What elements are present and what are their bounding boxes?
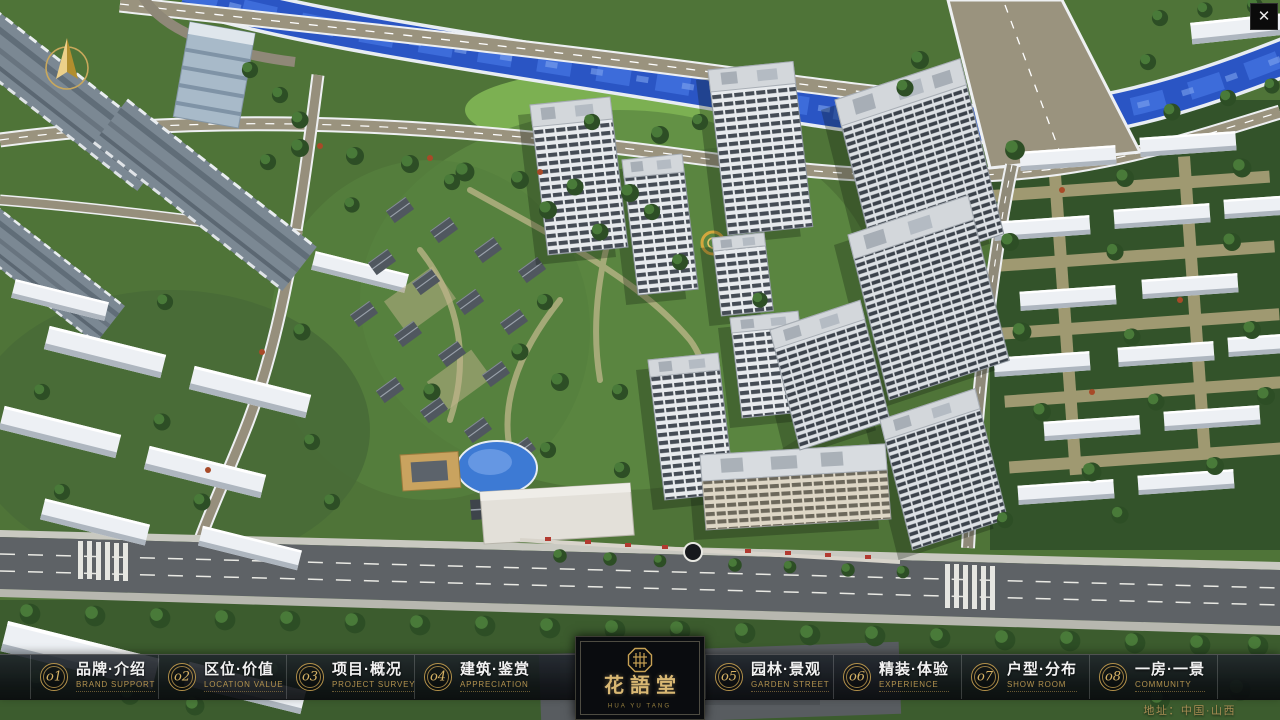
nav-number-badge: o4: [424, 663, 452, 691]
nav-label: 区位·价值: [204, 662, 283, 678]
nav-label: 园林·景观: [751, 662, 829, 678]
nav-caption: COMMUNITY: [1135, 680, 1205, 692]
nav-caption: BRAND SUPPORT: [76, 680, 155, 692]
nav-caption: SHOW ROOM: [1007, 680, 1077, 692]
nav-caption: PROJECT SURVEY: [332, 680, 414, 692]
navbar-left-stub: [0, 655, 30, 699]
address-text: 地址：中国·山西: [1143, 702, 1236, 718]
nav-label: 户型·分布: [1007, 662, 1077, 678]
nav-number-badge: o3: [296, 663, 324, 691]
seal-icon: [627, 647, 653, 673]
nav-item-decoration-experience[interactable]: o6 精装·体验 EXPERIENCE: [833, 655, 961, 699]
nav-item-architecture[interactable]: o4 建筑·鉴赏 APPRECIATION: [414, 655, 542, 699]
navbar-right-stub: [1217, 655, 1280, 699]
nav-label: 项目·概况: [332, 662, 414, 678]
nav-number-badge: o1: [40, 663, 68, 691]
aerial-masterplan-rendering: [0, 0, 1280, 720]
nav-label: 精装·体验: [879, 662, 949, 678]
nav-item-brand-intro[interactable]: o1 品牌·介绍 BRAND SUPPORT: [30, 655, 158, 699]
nav-number-badge: o7: [971, 663, 999, 691]
nav-caption: EXPERIENCE: [879, 680, 949, 692]
nav-item-floorplan-distribution[interactable]: o7 户型·分布 SHOW ROOM: [961, 655, 1089, 699]
nav-number-badge: o8: [1099, 663, 1127, 691]
brand-subtitle: HUA YU TANG: [608, 702, 671, 709]
compass-icon: [38, 30, 96, 96]
nav-caption: LOCATION VALUE: [204, 680, 283, 692]
nav-number-badge: o5: [715, 663, 743, 691]
nav-caption: APPRECIATION: [460, 680, 530, 692]
brand-logo-panel[interactable]: 花語堂 HUA YU TANG: [575, 636, 705, 720]
nav-item-location-value[interactable]: o2 区位·价值 LOCATION VALUE: [158, 655, 286, 699]
presentation-screen: ✕ o1 品牌·介绍 BRAND SUPPORT o2 区位·价值 LOCATI…: [0, 0, 1280, 720]
close-button[interactable]: ✕: [1250, 3, 1278, 30]
nav-number-badge: o6: [843, 663, 871, 691]
nav-item-room-view[interactable]: o8 一房·一景 COMMUNITY: [1089, 655, 1217, 699]
nav-label: 品牌·介绍: [76, 662, 155, 678]
nav-item-project-survey[interactable]: o3 项目·概况 PROJECT SURVEY: [286, 655, 414, 699]
nav-label: 一房·一景: [1135, 662, 1205, 678]
nav-caption: GARDEN STREET: [751, 680, 829, 692]
nav-item-garden-landscape[interactable]: o5 园林·景观 GARDEN STREET: [705, 655, 833, 699]
nav-label: 建筑·鉴赏: [460, 662, 530, 678]
nav-number-badge: o2: [168, 663, 196, 691]
brand-title: 花語堂: [598, 673, 682, 697]
